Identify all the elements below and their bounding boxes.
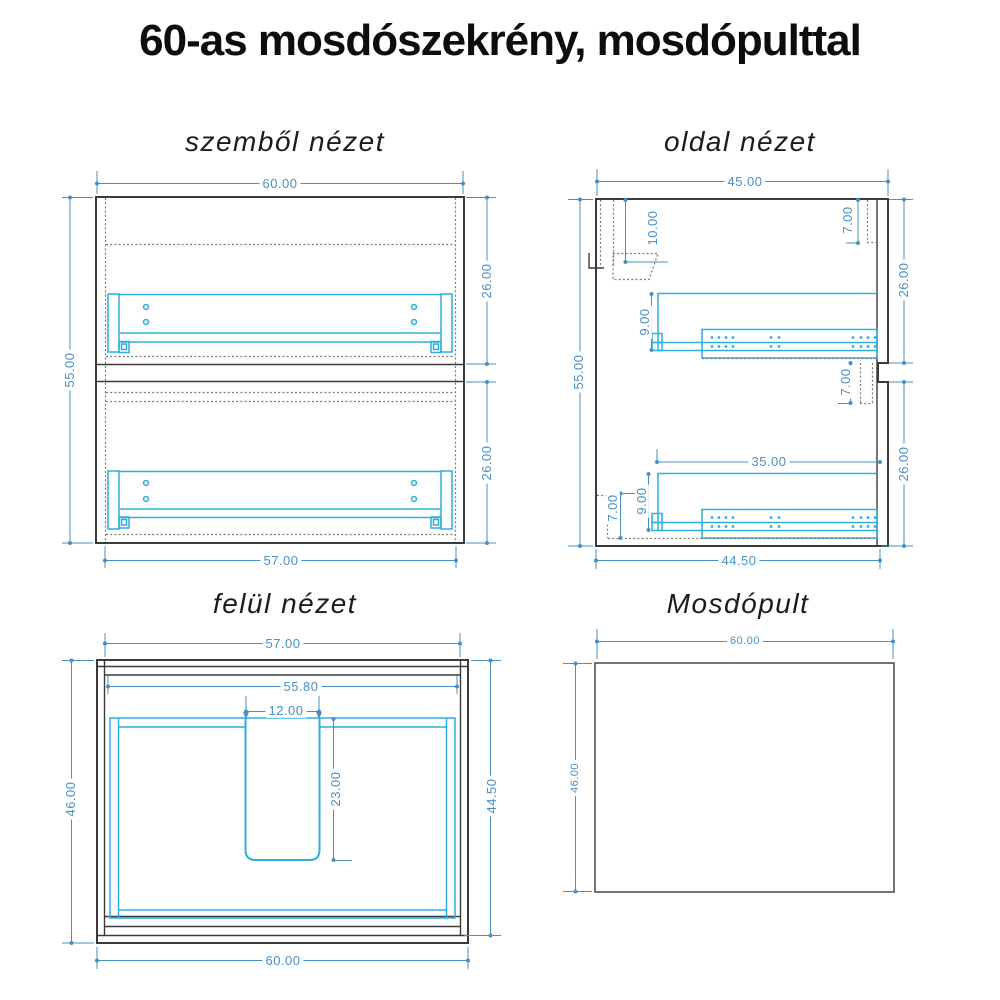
dim-top-width-top: 57.00 bbox=[262, 637, 303, 651]
dim-side-drawer-top: 26.00 bbox=[897, 259, 911, 300]
homedepo-logo: HOMEDEPO bbox=[0, 900, 1000, 1000]
dim-side-slide-length: 35.00 bbox=[748, 455, 789, 469]
dim-top-depth-right: 44.50 bbox=[485, 775, 499, 816]
dim-side-drawer-box-bottom: 9.00 bbox=[635, 484, 649, 517]
dim-top-depth-left: 46.00 bbox=[64, 778, 78, 819]
countertop-view-label: Mosdópult bbox=[667, 588, 810, 620]
dim-side-drawer-box-top: 9.00 bbox=[638, 305, 652, 338]
dim-front-drawer-top: 26.00 bbox=[480, 260, 494, 301]
dim-top-cutout-depth: 23.00 bbox=[329, 768, 343, 809]
dim-front-drawer-bottom: 26.00 bbox=[480, 442, 494, 483]
countertop-drawing bbox=[563, 629, 895, 894]
dim-side-plinth: 7.00 bbox=[606, 491, 620, 524]
dim-top-inner-width: 55.80 bbox=[280, 680, 321, 694]
front-view-label: szemből nézet bbox=[185, 126, 385, 158]
dim-side-bracket: 10.00 bbox=[646, 207, 660, 248]
dim-side-drawer-bottom: 26.00 bbox=[897, 443, 911, 484]
cabinet-drawing bbox=[0, 0, 1000, 1000]
top-view-label: felül nézet bbox=[213, 588, 357, 620]
dim-side-depth-top: 45.00 bbox=[724, 175, 765, 189]
dim-counter-width: 60.00 bbox=[727, 635, 763, 647]
dim-side-front-inset: 7.00 bbox=[841, 203, 855, 236]
dim-front-height-left: 55.00 bbox=[63, 349, 77, 390]
dim-counter-depth: 46.00 bbox=[569, 760, 581, 796]
dim-front-width-bottom: 57.00 bbox=[260, 554, 301, 568]
side-view-label: oldal nézet bbox=[664, 126, 816, 158]
dim-side-depth-bottom: 44.50 bbox=[718, 554, 759, 568]
dim-front-width-top: 60.00 bbox=[259, 177, 300, 191]
technical-drawing-page: 60-as mosdószekrény, mosdópulttal bbox=[0, 0, 1000, 1000]
dim-side-middle-gap: 7.00 bbox=[839, 365, 853, 398]
dim-side-height-left: 55.00 bbox=[572, 351, 586, 392]
dim-top-cutout-width: 12.00 bbox=[265, 704, 306, 718]
front-view-drawing bbox=[62, 171, 496, 568]
